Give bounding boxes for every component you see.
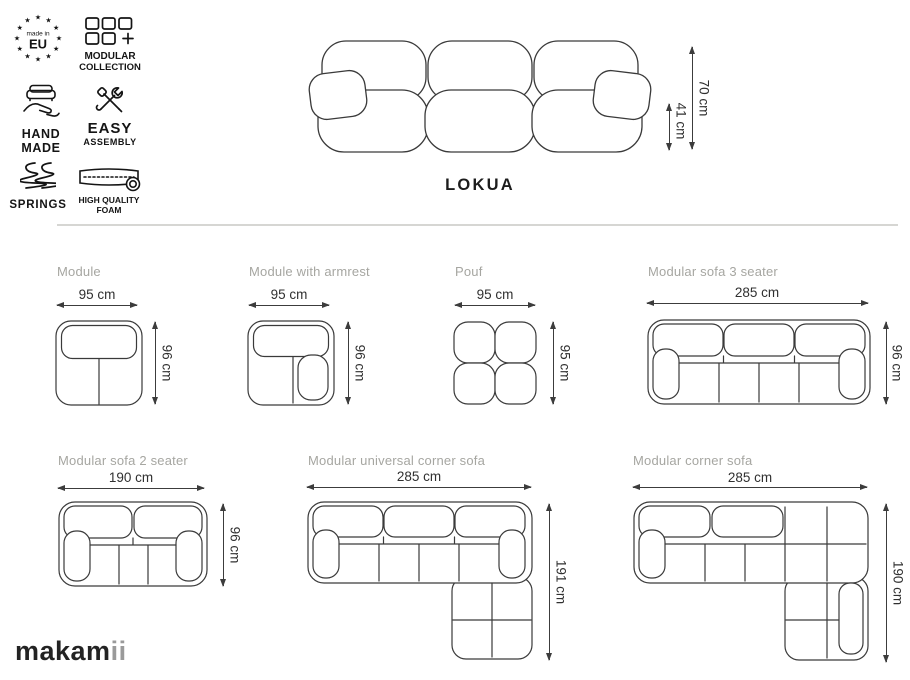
springs-label: SPRINGS [9, 199, 66, 212]
modular-collection-badge: MODULAR COLLECTION [78, 17, 142, 73]
module-depth-value: 96 cm [160, 345, 175, 382]
pouf-drawing [453, 321, 537, 405]
universal-corner-depth-arrow [549, 504, 550, 660]
star-icon: ★ [17, 24, 23, 32]
sofa3-width-value: 285 cm [697, 285, 817, 300]
product-name-sofa2: Modular sofa 2 seater [58, 453, 188, 468]
brand-logo: makamii [15, 636, 127, 667]
brand-logo-suffix: ii [111, 636, 127, 666]
product-name-module: Module [57, 264, 101, 279]
hero-seat-height-value: 41 cm [674, 103, 689, 140]
star-icon: ★ [45, 16, 51, 24]
hand-made-label-line2: MADE [21, 141, 60, 155]
star-icon: ★ [24, 16, 30, 24]
sofa3-depth-arrow [886, 322, 887, 404]
easy-assembly-label-line2: ASSEMBLY [83, 137, 136, 147]
star-icon: ★ [24, 53, 30, 61]
module-width-arrow [57, 305, 137, 306]
corner-width-arrow [633, 487, 867, 488]
pouf-width-arrow [455, 305, 535, 306]
universal-corner-width-arrow [307, 487, 531, 488]
universal-corner-width-value: 285 cm [359, 469, 479, 484]
brand-logo-main: makam [15, 636, 111, 666]
star-icon: ★ [35, 56, 41, 64]
hero-total-height-value: 70 cm [697, 80, 712, 117]
product-spec-sheet: ★ ★ ★ ★ ★ ★ ★ ★ ★ ★ ★ ★ made in EU MODUL… [0, 0, 910, 680]
sofa2-depth-value: 96 cm [228, 527, 243, 564]
product-name-sofa3: Modular sofa 3 seater [648, 264, 778, 279]
modular-label-line2: COLLECTION [79, 63, 141, 74]
easy-assembly-label-line1: EASY [88, 120, 133, 137]
star-icon: ★ [56, 35, 62, 43]
corner-depth-value: 190 cm [891, 561, 906, 605]
sofa3-width-arrow [647, 303, 868, 304]
product-name-corner: Modular corner sofa [633, 453, 752, 468]
product-name-module-armrest: Module with armrest [249, 264, 370, 279]
product-title: LOKUA [410, 176, 550, 195]
made-in-eu-badge-icon: ★ ★ ★ ★ ★ ★ ★ ★ ★ ★ ★ ★ made in EU [12, 10, 64, 66]
pouf-depth-value: 95 cm [558, 345, 573, 382]
product-name-universal-corner: Modular universal corner sofa [308, 453, 485, 468]
hero-total-height-arrow [692, 47, 693, 149]
pouf-width-value: 95 cm [435, 287, 555, 302]
module-armrest-depth-value: 96 cm [353, 345, 368, 382]
star-icon: ★ [14, 35, 20, 43]
module-depth-arrow [155, 322, 156, 404]
star-icon: ★ [35, 14, 41, 22]
module-armrest-drawing [247, 320, 335, 406]
pouf-depth-arrow [553, 322, 554, 404]
easy-assembly-badge: EASY ASSEMBLY [80, 84, 140, 148]
corner-width-value: 285 cm [690, 470, 810, 485]
hand-made-badge: HAND MADE [12, 84, 70, 156]
high-quality-foam-badge: HIGH QUALITY FOAM [70, 165, 148, 216]
module-width-value: 95 cm [37, 287, 157, 302]
modular-label-line1: MODULAR [84, 51, 135, 63]
sofa3-depth-value: 96 cm [890, 345, 905, 382]
sofa2-width-value: 190 cm [71, 470, 191, 485]
star-icon: ★ [53, 24, 59, 32]
product-name-pouf: Pouf [455, 264, 483, 279]
hand-made-label-line1: HAND [22, 127, 61, 141]
module-armrest-depth-arrow [348, 322, 349, 404]
module-drawing [55, 320, 143, 406]
universal-corner-depth-value: 191 cm [554, 560, 569, 604]
module-armrest-width-value: 95 cm [229, 287, 349, 302]
eu-label: EU [29, 37, 47, 52]
section-divider [57, 224, 898, 226]
hero-seat-height-arrow [669, 104, 670, 150]
module-armrest-width-arrow [249, 305, 329, 306]
corner-drawing [633, 501, 869, 662]
springs-icon [20, 160, 56, 194]
corner-depth-arrow [886, 504, 887, 662]
springs-badge: SPRINGS [8, 160, 68, 212]
star-icon: ★ [53, 45, 59, 53]
hand-made-icon [21, 84, 61, 122]
universal-corner-drawing [307, 501, 533, 661]
high-quality-foam-icon [76, 165, 142, 193]
easy-assembly-icon [94, 84, 126, 116]
sofa2-drawing [58, 501, 208, 587]
sofa2-width-arrow [58, 488, 204, 489]
sofa2-depth-arrow [223, 504, 224, 586]
hero-sofa-drawing [308, 38, 652, 156]
star-icon: ★ [17, 45, 23, 53]
star-icon: ★ [45, 53, 51, 61]
sofa3-drawing [647, 319, 871, 405]
foam-label-line2: FOAM [96, 206, 121, 216]
modular-collection-icon [85, 17, 135, 46]
